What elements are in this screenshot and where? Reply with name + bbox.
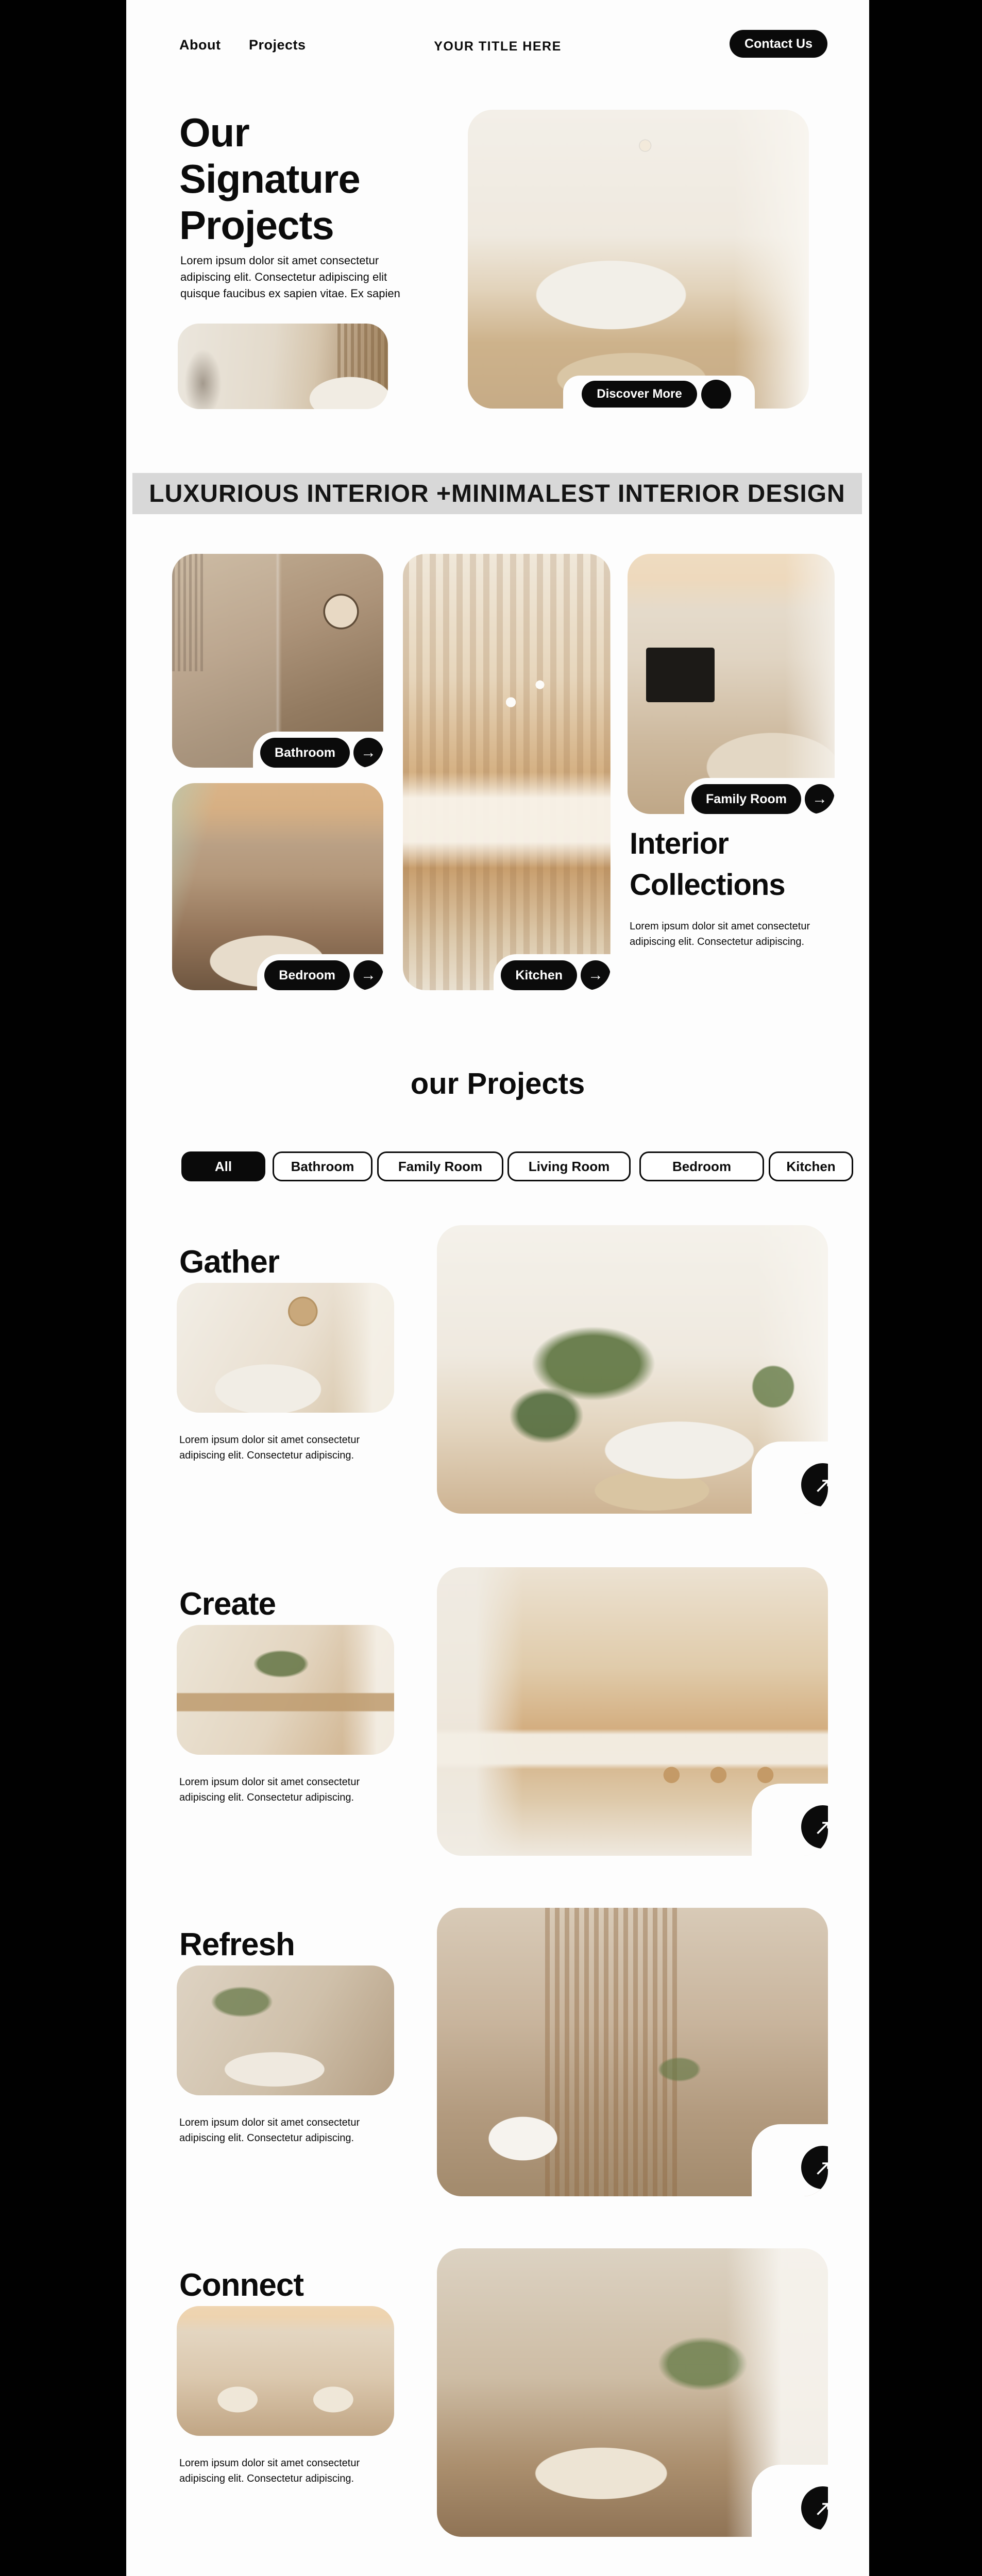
contact-us-button[interactable]: Contact Us: [730, 30, 827, 58]
kitchen-arrow-button[interactable]: →: [581, 960, 611, 990]
project-card-create: Create Lorem ipsum dolor sit amet consec…: [126, 1567, 869, 1882]
card-description: Lorem ipsum dolor sit amet consectetur a…: [179, 2115, 360, 2146]
filter-bathroom[interactable]: Bathroom: [273, 1151, 373, 1181]
filter-bedroom[interactable]: Bedroom: [639, 1151, 764, 1181]
arrow-right-icon: →: [361, 744, 376, 761]
kitchen-link[interactable]: Kitchen: [501, 960, 577, 990]
card-title: Create: [179, 1586, 276, 1622]
page-content: About Projects YOUR TITLE HERE Contact U…: [126, 0, 869, 2576]
card-thumbnail-image: [177, 1283, 394, 1413]
bedroom-link[interactable]: Bedroom: [264, 960, 350, 990]
hero-main-image: Discover More: [468, 110, 809, 409]
arrow-up-right-icon: ↗: [814, 2155, 828, 2180]
interior-collections-heading: Interior Collections: [630, 823, 785, 906]
arrow-right-icon: →: [361, 967, 376, 984]
bedroom-arrow-button[interactable]: →: [353, 960, 383, 990]
hero-description: Lorem ipsum dolor sit amet consectetur a…: [180, 252, 400, 302]
card-main-image: ↗: [437, 1908, 828, 2196]
filter-family-room[interactable]: Family Room: [377, 1151, 503, 1181]
arrow-right-icon: →: [812, 790, 827, 808]
gallery-kitchen-image: Kitchen →: [403, 554, 611, 990]
project-card-connect: Connect Lorem ipsum dolor sit amet conse…: [126, 2248, 869, 2563]
our-projects-heading: our Projects: [126, 1066, 869, 1101]
discover-more-circle-button[interactable]: [701, 380, 731, 409]
bathroom-link[interactable]: Bathroom: [260, 738, 350, 768]
hero-button-notch: Discover More: [563, 376, 755, 409]
family-room-link[interactable]: Family Room: [691, 784, 801, 814]
bathroom-arrow-button[interactable]: →: [353, 738, 383, 768]
marquee-banner: LUXURIOUS INTERIOR +MINIMALEST INTERIOR …: [132, 473, 862, 514]
card-thumbnail-image: [177, 1965, 394, 2095]
hero-heading: Our Signature Projects: [179, 109, 360, 248]
arrow-up-right-icon: ↗: [814, 1815, 828, 1840]
card-description: Lorem ipsum dolor sit amet consectetur a…: [179, 1432, 360, 1463]
project-card-gather: Gather Lorem ipsum dolor sit amet consec…: [126, 1225, 869, 1539]
arrow-up-right-icon: ↗: [814, 2496, 828, 2521]
card-thumbnail-image: [177, 1625, 394, 1755]
card-main-image: ↗: [437, 1567, 828, 1856]
hero-secondary-image: [178, 324, 388, 409]
family-room-arrow-button[interactable]: →: [805, 784, 835, 814]
gallery-bathroom-image: Bathroom →: [172, 554, 383, 768]
kitchen-label-notch: Kitchen →: [494, 954, 611, 990]
discover-more-button[interactable]: Discover More: [582, 381, 697, 408]
card-title: Gather: [179, 1244, 279, 1280]
page: About Projects YOUR TITLE HERE Contact U…: [0, 0, 982, 2576]
project-card-refresh: Refresh Lorem ipsum dolor sit amet conse…: [126, 1908, 869, 2222]
arrow-up-right-icon: ↗: [814, 1472, 828, 1498]
family-room-label-notch: Family Room →: [684, 778, 835, 814]
card-main-image: ↗: [437, 1225, 828, 1514]
bathroom-label-notch: Bathroom →: [253, 732, 383, 768]
filter-kitchen[interactable]: Kitchen: [769, 1151, 853, 1181]
gallery-family-room-image: Family Room →: [628, 554, 835, 814]
card-main-image: ↗: [437, 2248, 828, 2537]
card-description: Lorem ipsum dolor sit amet consectetur a…: [179, 1774, 360, 1805]
arrow-right-icon: →: [588, 967, 603, 984]
gallery-bedroom-image: Bedroom →: [172, 783, 383, 990]
card-title: Refresh: [179, 1926, 295, 1963]
card-description: Lorem ipsum dolor sit amet consectetur a…: [179, 2455, 360, 2486]
tv-screen-shape: [646, 648, 715, 702]
filter-all[interactable]: All: [181, 1151, 265, 1181]
card-thumbnail-image: [177, 2306, 394, 2436]
bedroom-label-notch: Bedroom →: [257, 954, 383, 990]
interior-collections-description: Lorem ipsum dolor sit amet consectetur a…: [630, 919, 810, 950]
filter-living-room[interactable]: Living Room: [507, 1151, 631, 1181]
card-title: Connect: [179, 2267, 303, 2303]
